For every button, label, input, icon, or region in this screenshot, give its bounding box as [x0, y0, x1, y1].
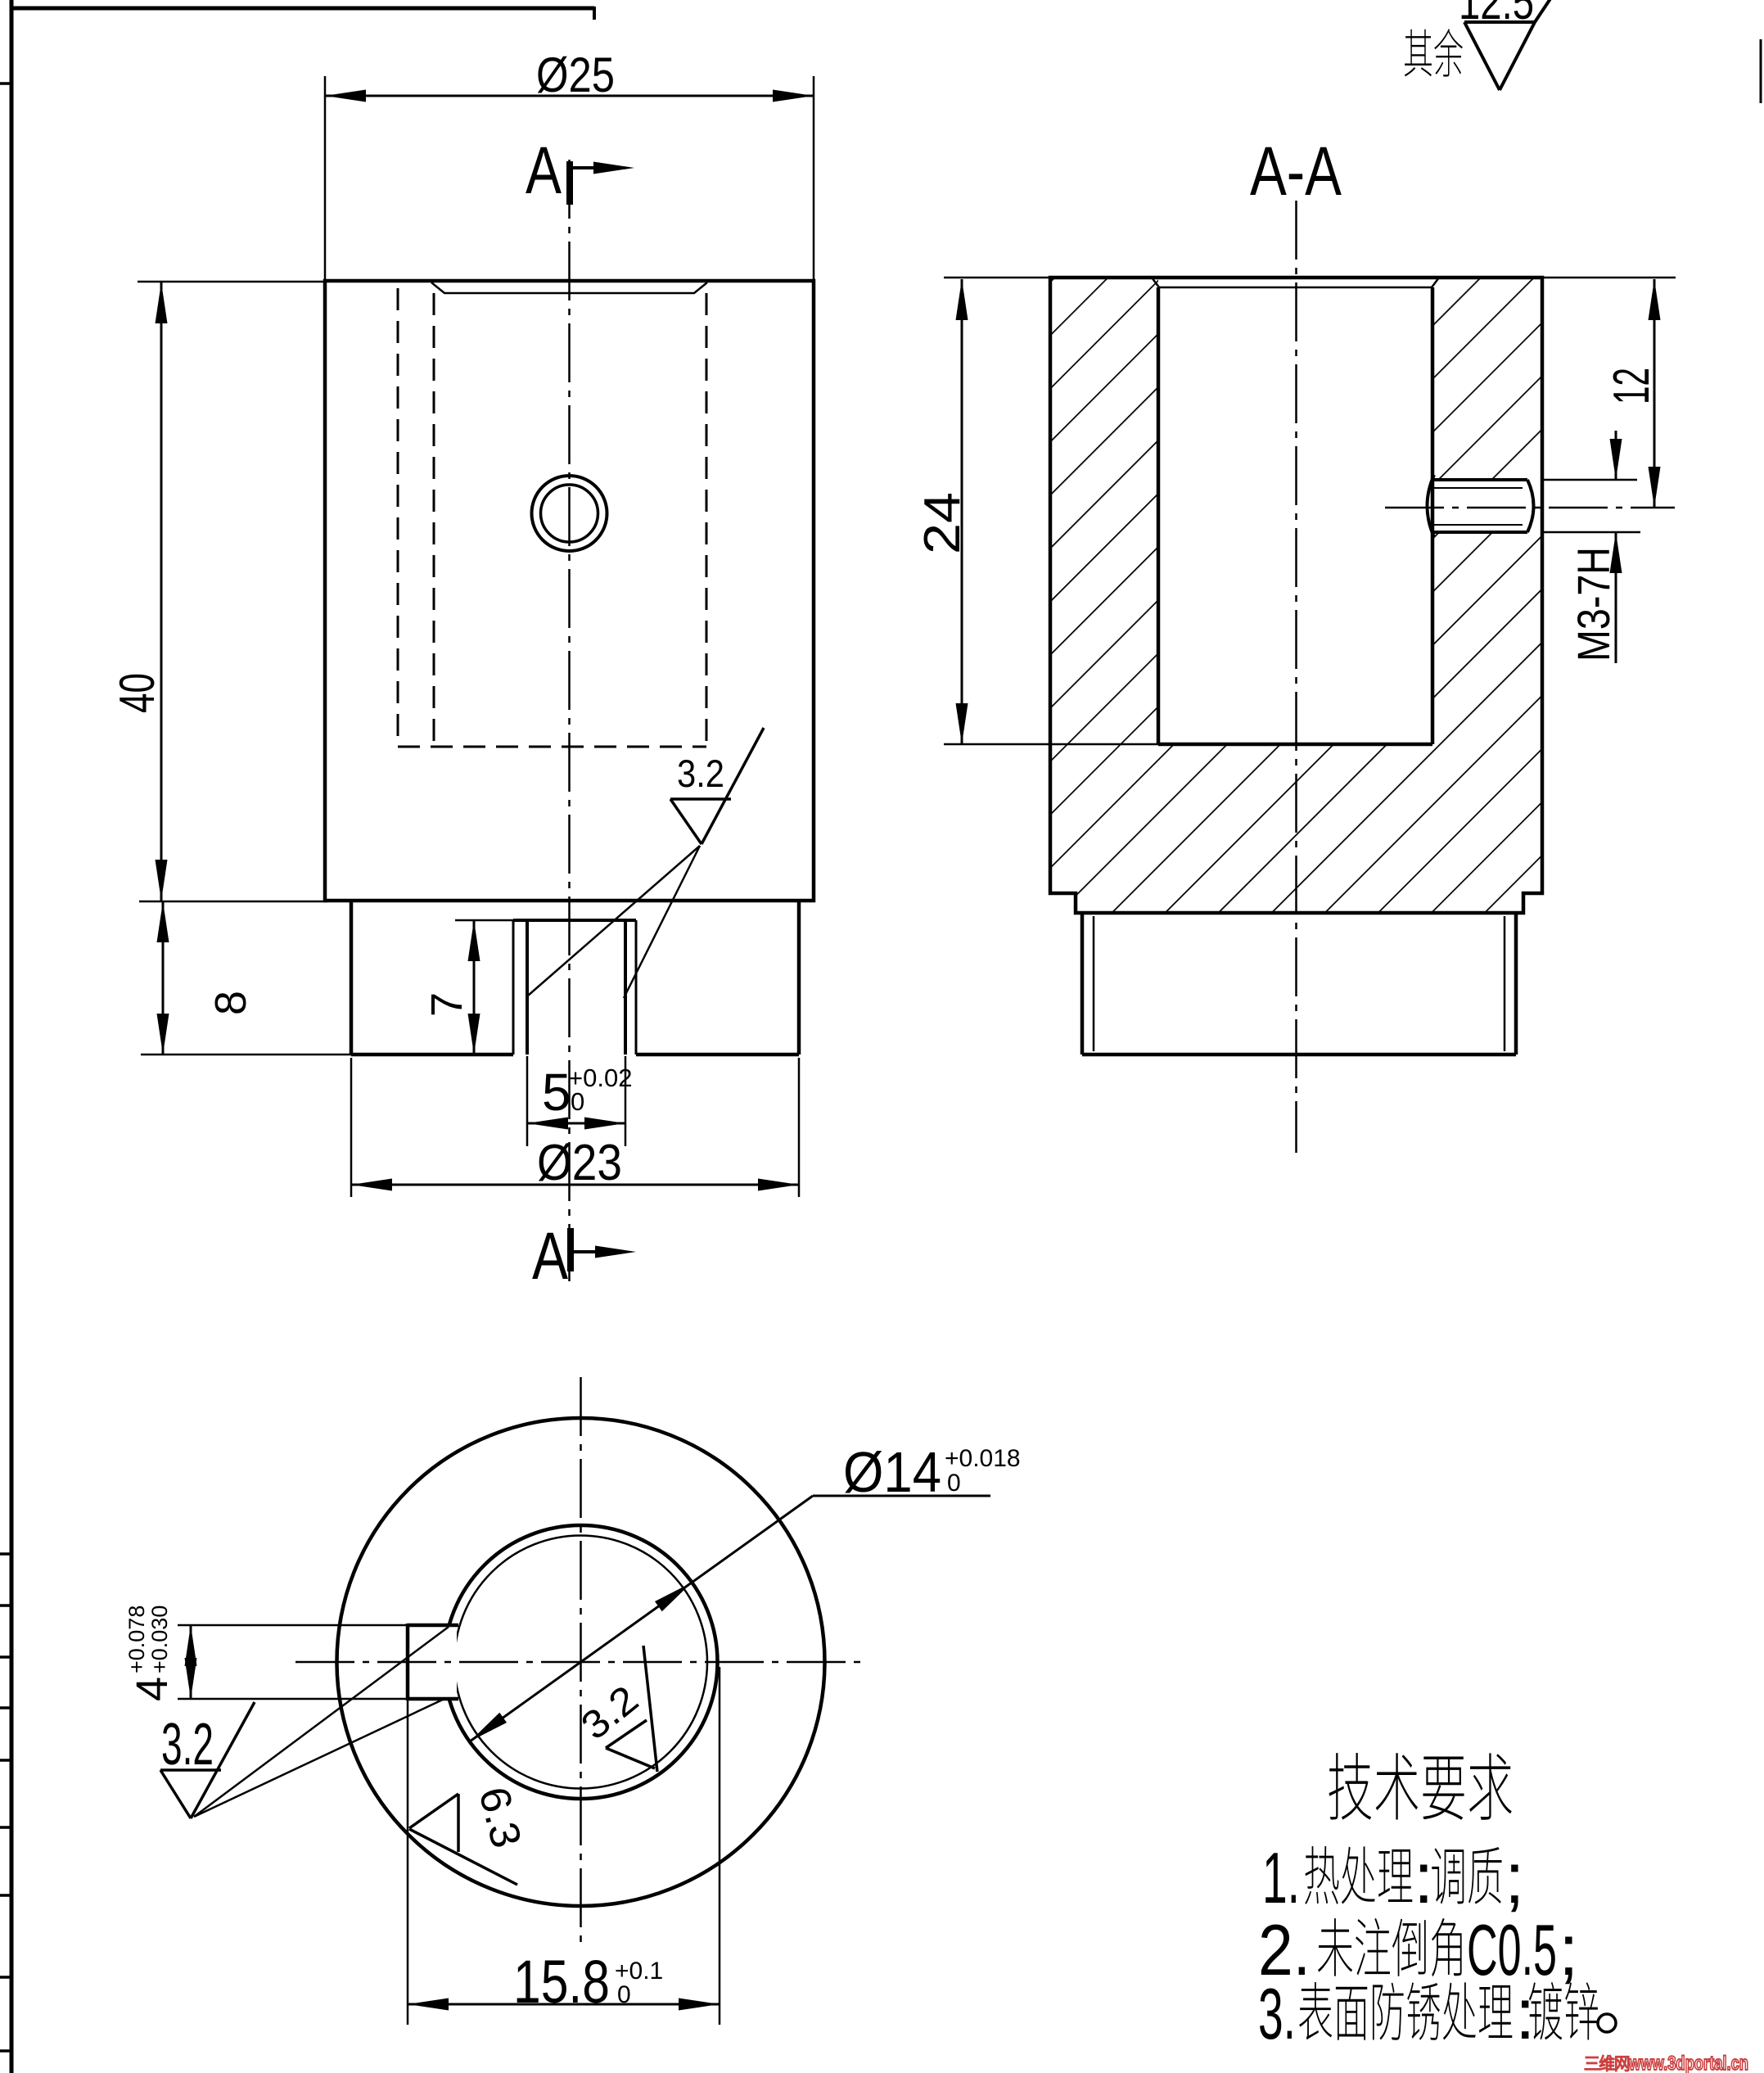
svg-text:A: A	[532, 1219, 568, 1294]
svg-text:Ø23: Ø23	[537, 1135, 622, 1191]
svg-text:C0.5: C0.5	[1467, 1909, 1557, 1990]
svg-text:1.: 1.	[1262, 1837, 1300, 1918]
svg-text:4: 4	[128, 1677, 177, 1701]
svg-text:+0.078: +0.078	[124, 1606, 149, 1673]
svg-text:12: 12	[1604, 368, 1660, 404]
svg-text:Ø14: Ø14	[843, 1440, 941, 1504]
svg-text:+0.018: +0.018	[945, 1445, 1021, 1472]
svg-text:40: 40	[110, 673, 165, 713]
svg-text:0: 0	[571, 1087, 584, 1116]
svg-text::: :	[1414, 1837, 1433, 1918]
svg-text:;: ;	[1559, 1909, 1578, 1990]
svg-text:0: 0	[617, 1981, 631, 2008]
svg-text:;: ;	[1505, 1837, 1524, 1918]
svg-text:M3-7H: M3-7H	[1568, 547, 1619, 662]
svg-text::: :	[1515, 1973, 1535, 2054]
svg-text:24: 24	[914, 492, 971, 554]
svg-text:www.3dportal.cn: www.3dportal.cn	[1628, 2053, 1748, 2073]
svg-text:0: 0	[947, 1470, 961, 1497]
svg-text:+0.030: +0.030	[147, 1606, 172, 1673]
svg-text:12.5: 12.5	[1459, 0, 1534, 29]
svg-text:3.2: 3.2	[677, 752, 724, 795]
svg-text:3.: 3.	[1258, 1973, 1296, 2054]
svg-text:8: 8	[206, 991, 255, 1015]
svg-text:7: 7	[422, 992, 471, 1017]
svg-text:15.8: 15.8	[513, 1948, 610, 2016]
svg-text:A: A	[526, 133, 562, 208]
svg-text:5: 5	[542, 1063, 571, 1122]
svg-text:Ø25: Ø25	[536, 47, 615, 102]
svg-text:3.2: 3.2	[161, 1712, 214, 1777]
svg-text:A-A: A-A	[1250, 133, 1342, 210]
